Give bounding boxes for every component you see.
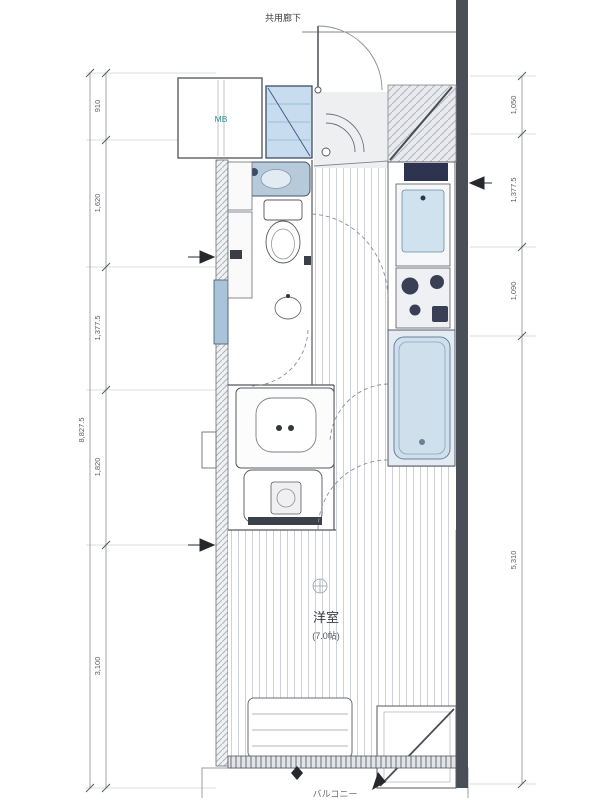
paper-holder [304, 256, 311, 265]
toilet-door-arc [252, 330, 308, 386]
washbasin-faucet-left [276, 425, 282, 431]
stove-grill [432, 306, 448, 322]
dimension-labels-left: 910 1,620 1,377.5 1,820 3,100 8,827.5 [77, 100, 102, 676]
furniture-bench [248, 698, 352, 758]
corridor-label: 共用廊下 [265, 12, 301, 23]
range-hood [404, 163, 448, 181]
right-outer-wall [456, 0, 468, 788]
section-arrow-right [470, 177, 484, 189]
bathtub-drain [419, 439, 425, 445]
section-arrow-left-upper [200, 251, 214, 263]
entry-step-pivot [322, 148, 330, 156]
toilet [264, 200, 311, 265]
bathroom [388, 330, 455, 466]
left-extension-lines [86, 73, 216, 788]
toilet-bowl [266, 221, 300, 263]
dim-left-seg-4: 1,820 [93, 458, 102, 477]
toilet-tank [264, 200, 302, 220]
dim-left-total: 8,827.5 [77, 417, 86, 442]
left-wall-window [214, 280, 228, 344]
entrance-floor [314, 92, 388, 168]
pipe-shaft [266, 86, 312, 158]
bottom-right-corner-box [372, 706, 456, 790]
left-wall-protrusion [202, 432, 216, 468]
wall-cabinets [228, 162, 252, 298]
dim-left-seg-1: 910 [93, 100, 102, 113]
entrance-door-hinge [315, 87, 321, 93]
dim-left-seg-3: 1,377.5 [93, 315, 102, 340]
floor-plan-page: 910 1,620 1,377.5 1,820 3,100 8,827.5 1,… [0, 0, 600, 800]
balcony-window-sash [228, 756, 456, 768]
hand-wash-basin [275, 294, 301, 319]
dim-right-seg-3: 1,090 [509, 282, 518, 301]
section-arrow-left-lower [200, 539, 214, 551]
washing-machine [244, 470, 322, 525]
entrance-door-swing-arc [318, 26, 382, 90]
left-outer-wall [216, 160, 228, 766]
dim-left-seg-2: 1,620 [93, 194, 102, 213]
washbasin-faucet-right [288, 425, 294, 431]
room-size-label: (7.0帖) [312, 630, 340, 641]
washbasin-bowl [256, 398, 316, 452]
washer-drum [271, 482, 301, 514]
mb-label: MB [215, 114, 228, 124]
balcony-label: バルコニー [313, 789, 358, 799]
powder-room-counter-edge [248, 517, 322, 525]
stove-burner-3 [410, 305, 421, 316]
dim-left-seg-5: 3,100 [93, 657, 102, 676]
kitchen-faucet [421, 196, 426, 201]
dimension-chain-left [86, 69, 216, 792]
vanity-bowl [261, 170, 291, 189]
dim-right-seg-2: 1,377.5 [509, 177, 518, 202]
washbasin-counter [236, 388, 334, 468]
dim-right-seg-4: 5,310 [509, 551, 518, 570]
floor-plan-canvas: 910 1,620 1,377.5 1,820 3,100 8,827.5 1,… [0, 0, 600, 800]
dim-right-seg-1: 1,050 [509, 96, 518, 115]
meter-box: MB [178, 78, 262, 158]
vanity-unit [246, 162, 310, 196]
dimension-labels-right: 1,050 1,377.5 1,090 5,310 [509, 96, 518, 570]
stove-burner-1 [402, 278, 419, 295]
room-label: 洋室 [313, 610, 339, 625]
top-right-void [388, 85, 456, 162]
stove-burner-2 [430, 275, 444, 289]
kitchen [388, 162, 455, 330]
hand-wash-faucet [286, 294, 290, 298]
